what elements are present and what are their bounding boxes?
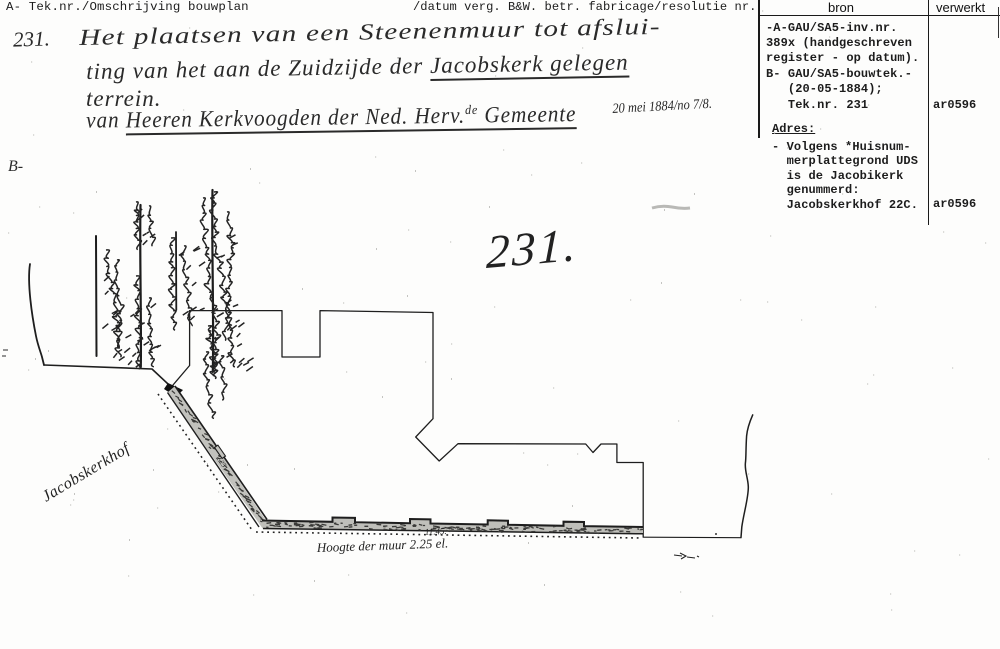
svg-text:231.: 231. — [486, 219, 579, 279]
svg-text:Hoogte der muur 2.25 el.: Hoogte der muur 2.25 el. — [316, 535, 449, 555]
svg-text:Jacobskerkhof: Jacobskerkhof — [39, 439, 134, 506]
svg-text:11.45.: 11.45. — [425, 526, 447, 537]
